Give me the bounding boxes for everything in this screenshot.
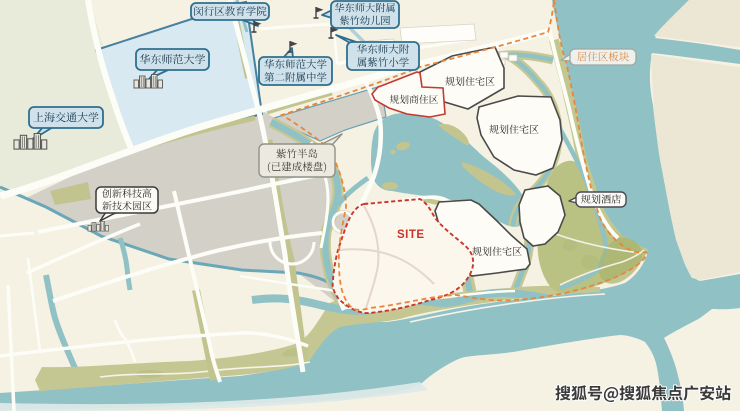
svg-text:SITE: SITE <box>397 229 425 241</box>
